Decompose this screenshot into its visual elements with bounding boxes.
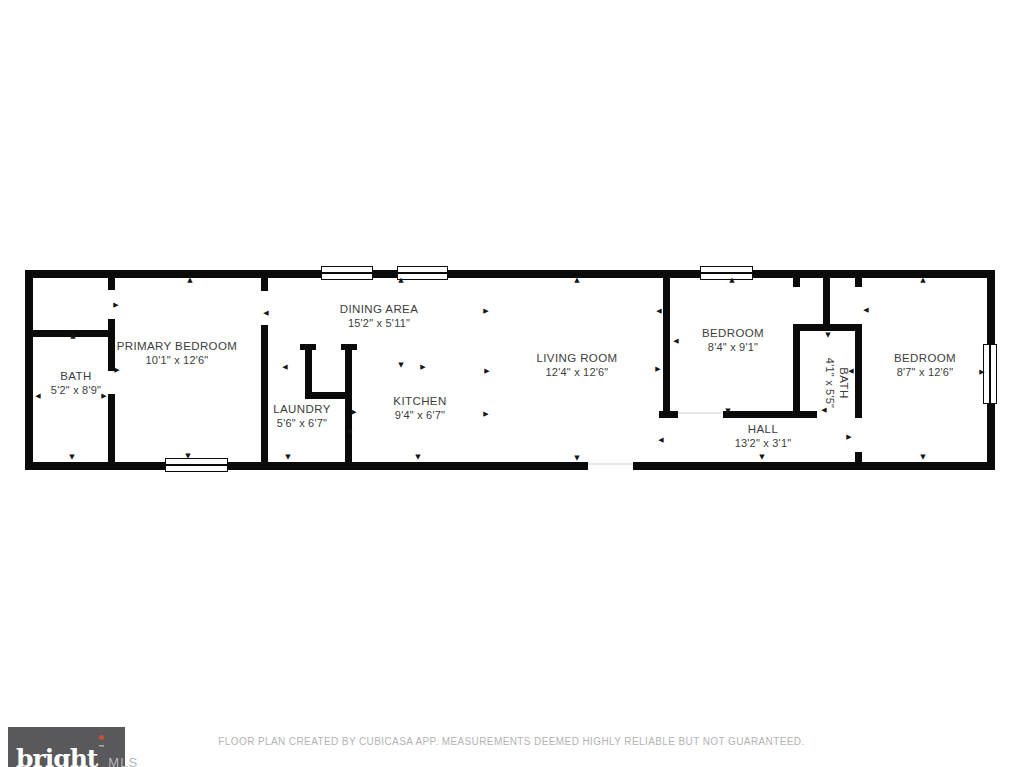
measurement-tick-icon: ▲ (70, 333, 75, 340)
room-name: BEDROOM (702, 327, 764, 339)
brightmls-logo: bright™ MLS (8, 727, 125, 767)
room-name: PRIMARY BEDROOM (117, 340, 238, 352)
measurement-tick-icon: ▶ (484, 368, 489, 375)
wall-segment (823, 277, 830, 331)
room-dimensions: 5'6" x 6'7" (273, 417, 331, 429)
wall-segment (25, 270, 33, 470)
room-name: DINING AREA (340, 303, 419, 315)
measurement-tick-icon: ▼ (415, 454, 420, 461)
floor-plan-page: ▲▲▲▲▲▼▼▼▼▼▼▼▲▶▶◀▶◀◀▶◀▶▼▶▶▶◀▶◀▼▼◀◀◀▶▶◀BAT… (0, 0, 1023, 767)
wall-segment (723, 411, 817, 418)
wall-segment (793, 324, 800, 416)
wall-segment (659, 411, 678, 418)
room-label: BEDROOM8'4" x 9'1" (702, 327, 764, 353)
wall-segment (633, 462, 995, 470)
measurement-tick-icon: ▶ (113, 302, 118, 309)
brightmls-logo-mls-text: MLS (108, 755, 138, 767)
measurement-tick-icon: ▼ (759, 454, 764, 461)
room-dimensions: 13'2" x 3'1" (735, 437, 792, 449)
wall-segment (108, 394, 115, 466)
measurement-tick-icon: ▼ (574, 455, 579, 462)
measurement-tick-icon: ▼ (398, 362, 403, 369)
brightmls-logo-wordmark: bright™ (16, 727, 103, 767)
measurement-tick-icon: ▶ (483, 308, 488, 315)
wall-segment (855, 277, 862, 287)
room-name: BATH (838, 358, 850, 408)
measurement-tick-icon: ◀ (863, 307, 868, 314)
window-marker (397, 266, 448, 280)
wall-segment (345, 344, 352, 466)
measurement-tick-icon: ◀ (282, 364, 287, 371)
measurement-tick-icon: ▶ (483, 411, 488, 418)
room-label: PRIMARY BEDROOM10'1" x 12'6" (117, 340, 238, 366)
measurement-tick-icon: ▼ (825, 332, 830, 339)
room-dimensions: 10'1" x 12'6" (117, 354, 238, 366)
measurement-tick-icon: ▲ (398, 277, 403, 284)
room-label: BATH5'2" x 8'9" (51, 370, 101, 396)
room-dimensions: 9'4" x 6'7" (393, 409, 446, 421)
room-dimensions: 5'2" x 8'9" (51, 384, 101, 396)
room-label: KITCHEN9'4" x 6'7" (393, 395, 446, 421)
room-label: DINING AREA15'2" x 5'11" (340, 303, 419, 329)
measurement-tick-icon: ▲ (729, 277, 734, 284)
window-mid-line (701, 272, 752, 274)
measurement-tick-icon: ▼ (69, 454, 74, 461)
door-opening (678, 412, 722, 414)
window-marker (983, 344, 997, 404)
measurement-tick-icon: ▶ (101, 393, 106, 400)
measurement-tick-icon: ▲ (920, 277, 925, 284)
brightmls-logo-text: bright (16, 744, 97, 767)
window-mid-line (166, 464, 227, 466)
window-mid-line (322, 272, 372, 274)
window-mid-line (989, 345, 991, 403)
measurement-tick-icon: ▲ (187, 277, 192, 284)
measurement-tick-icon: ◀ (658, 437, 663, 444)
measurement-tick-icon: ▲ (574, 277, 579, 284)
room-label: HALL13'2" x 3'1" (735, 423, 792, 449)
measurement-tick-icon: ▶ (655, 366, 660, 373)
disclaimer-text: FLOOR PLAN CREATED BY CUBICASA APP. MEAS… (0, 736, 1023, 747)
room-name: BEDROOM (894, 352, 956, 364)
wall-segment (108, 277, 115, 290)
wall-segment (261, 277, 268, 291)
room-label: LAUNDRY5'6" x 6'7" (273, 403, 331, 429)
wall-segment (305, 392, 352, 399)
window-marker (165, 458, 228, 472)
wall-segment (793, 277, 800, 287)
window-mid-line (398, 272, 447, 274)
wall-segment (663, 277, 670, 416)
wall-segment (305, 344, 312, 398)
measurement-tick-icon: ◀ (656, 308, 661, 315)
measurement-tick-icon: ▼ (920, 454, 925, 461)
room-label: LIVING ROOM12'4" x 12'6" (536, 352, 617, 378)
measurement-tick-icon: ▼ (185, 453, 190, 460)
room-dimensions: 8'7" x 12'6" (894, 366, 956, 378)
measurement-tick-icon: ◀ (263, 310, 268, 317)
measurement-tick-icon: ▼ (725, 408, 730, 415)
room-name: LAUNDRY (273, 403, 331, 415)
room-dimensions: 15'2" x 5'11" (340, 317, 419, 329)
measurement-tick-icon: ◀ (35, 393, 40, 400)
wall-segment (108, 319, 115, 371)
wall-segment (261, 325, 268, 466)
room-name: BATH (51, 370, 101, 382)
room-dimensions: 8'4" x 9'1" (702, 341, 764, 353)
measurement-tick-icon: ▼ (285, 454, 290, 461)
measurement-tick-icon: ▶ (420, 364, 425, 371)
room-name: LIVING ROOM (536, 352, 617, 364)
window-marker (321, 266, 373, 280)
measurement-tick-icon: ▶ (979, 369, 984, 376)
window-marker (700, 266, 753, 280)
room-dimensions: 12'4" x 12'6" (536, 366, 617, 378)
measurement-tick-icon: ▶ (114, 367, 119, 374)
room-label: BEDROOM8'7" x 12'6" (894, 352, 956, 378)
wall-segment (855, 324, 862, 418)
measurement-tick-icon: ◀ (673, 338, 678, 345)
room-name: HALL (735, 423, 792, 435)
door-opening (588, 463, 633, 465)
wall-segment (855, 452, 862, 465)
room-name: KITCHEN (393, 395, 446, 407)
room-label: BATH4'1" x 5'5" (824, 358, 850, 408)
measurement-tick-icon: ▶ (846, 434, 851, 441)
room-dimensions: 4'1" x 5'5" (824, 358, 836, 408)
measurement-tick-icon: ◀ (346, 428, 351, 435)
measurement-tick-icon: ▶ (351, 409, 356, 416)
wall-segment (25, 270, 995, 278)
